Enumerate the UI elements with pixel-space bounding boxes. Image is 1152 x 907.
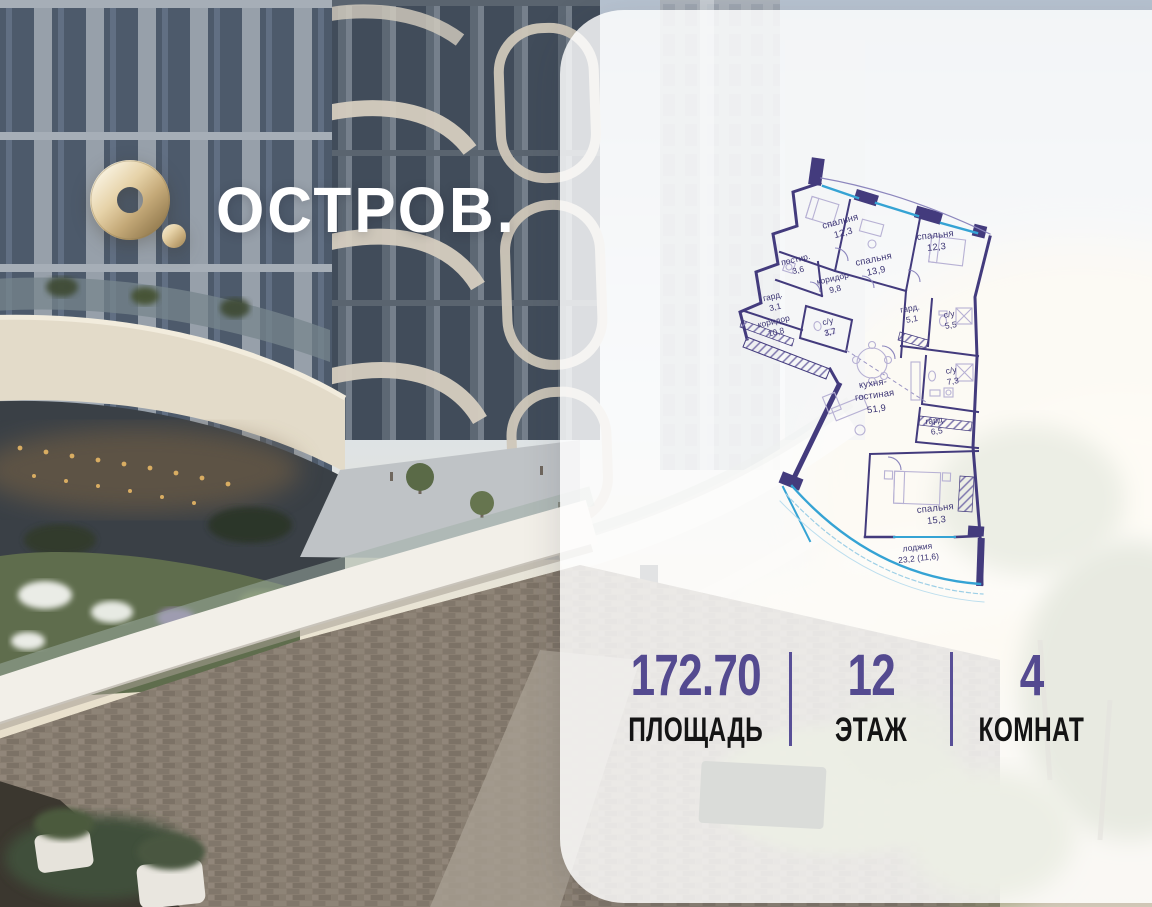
svg-text:гард.: гард. — [762, 289, 783, 303]
room-label: с/у 7,3 — [944, 364, 959, 387]
room-label: лоджия 23,2 (11,6) — [896, 540, 939, 565]
stat-rooms-value: 4 — [1019, 648, 1043, 703]
svg-text:12,3: 12,3 — [926, 240, 946, 253]
stat-area: 172.70 ПЛОЩАДЬ — [602, 648, 789, 747]
room-label: спальня 12,3 — [821, 211, 863, 243]
room-label: спальня 15,3 — [916, 500, 955, 527]
brand-name: ОСТРОВ. — [216, 178, 517, 242]
stat-floor-label: ЭТАЖ — [835, 713, 907, 747]
stat-area-label: ПЛОЩАДЬ — [628, 713, 763, 747]
svg-text:6,5: 6,5 — [930, 425, 943, 437]
room-label: спальня 13,9 — [854, 249, 895, 279]
stat-floor: 12 ЭТАЖ — [792, 648, 949, 747]
stat-rooms-label: КОМНАТ — [979, 713, 1085, 747]
svg-text:7,3: 7,3 — [946, 375, 960, 387]
room-label: с/у 5,5 — [942, 308, 957, 331]
stat-floor-value: 12 — [847, 648, 895, 703]
brand-logo: ОСТРОВ. — [88, 156, 526, 252]
room-label: спальня 12,3 — [916, 227, 955, 254]
svg-text:5,1: 5,1 — [905, 313, 919, 325]
svg-text:гард.: гард. — [899, 301, 920, 314]
listing-card: ОСТРОВ. — [0, 0, 1152, 907]
stat-area-value: 172.70 — [631, 648, 761, 703]
svg-text:3,1: 3,1 — [768, 301, 782, 313]
floor-plan: спальня 12,3 спальня 13,9 спальня 12,3 п… — [722, 150, 992, 612]
svg-text:3,7: 3,7 — [823, 326, 837, 338]
svg-text:5,5: 5,5 — [944, 319, 958, 331]
stat-rooms: 4 КОМНАТ — [953, 648, 1110, 747]
svg-text:3,6: 3,6 — [791, 264, 805, 276]
svg-text:51,9: 51,9 — [866, 402, 886, 416]
room-label: гард. 3,1 — [762, 289, 786, 314]
room-labels: спальня 12,3 спальня 13,9 спальня 12,3 п… — [757, 211, 960, 565]
svg-text:с/у: с/у — [943, 308, 956, 320]
gold-ring-logo-icon — [88, 156, 190, 252]
svg-text:9,8: 9,8 — [828, 283, 842, 295]
room-label: с/у 3,7 — [821, 315, 837, 338]
room-label: постир. 3,6 — [780, 251, 814, 278]
svg-text:спальня: спальня — [916, 500, 954, 515]
svg-text:15,3: 15,3 — [926, 513, 946, 526]
stats-bar: 172.70 ПЛОЩАДЬ 12 ЭТАЖ 4 КОМНАТ — [602, 648, 1110, 747]
svg-text:спальня: спальня — [916, 227, 954, 242]
room-label: кухня- гостиная 51,9 — [852, 374, 896, 416]
